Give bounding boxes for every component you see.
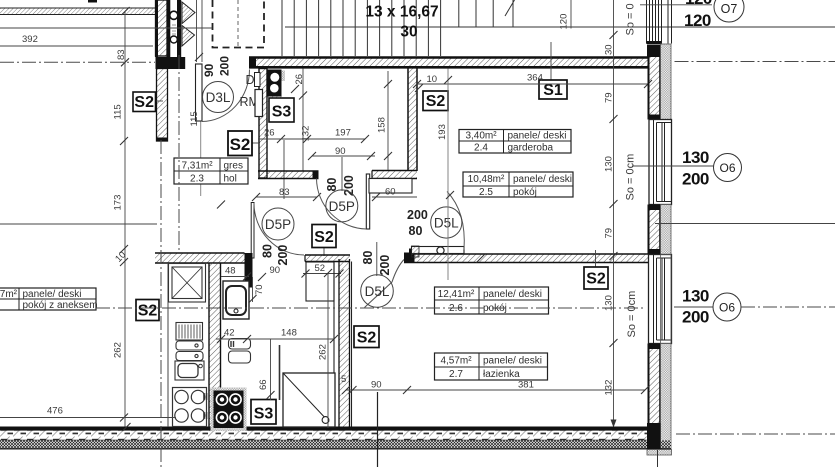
svg-text:łazienka: łazienka [483, 369, 520, 380]
svg-text:panele/ deski: panele/ deski [483, 289, 542, 300]
svg-text:70: 70 [254, 284, 265, 295]
svg-text:48: 48 [225, 266, 236, 277]
svg-text:O6: O6 [719, 301, 735, 315]
svg-text:115: 115 [189, 111, 200, 126]
svg-text:115: 115 [113, 104, 124, 119]
svg-text:S2: S2 [314, 229, 334, 246]
svg-text:173: 173 [113, 195, 124, 211]
svg-text:panele/ deski: panele/ deski [508, 131, 567, 142]
svg-text:262: 262 [113, 342, 124, 358]
svg-text:D5L: D5L [365, 284, 390, 299]
svg-text:30: 30 [604, 44, 615, 55]
svg-text:S2: S2 [134, 94, 154, 111]
svg-text:392: 392 [22, 34, 38, 45]
svg-text:2.3: 2.3 [190, 174, 204, 185]
svg-text:364: 364 [527, 73, 543, 84]
svg-text:S1: S1 [543, 82, 563, 99]
svg-text:200: 200 [682, 308, 709, 327]
svg-text:panele/ deski: panele/ deski [483, 356, 542, 367]
svg-text:2.4: 2.4 [474, 143, 488, 154]
svg-text:S2: S2 [138, 303, 158, 320]
svg-text:D5P: D5P [265, 217, 291, 232]
svg-text:13 x 16,67: 13 x 16,67 [365, 4, 438, 21]
svg-text:5: 5 [341, 374, 346, 385]
svg-text:90: 90 [335, 146, 346, 157]
svg-text:So = 0cm: So = 0cm [625, 154, 637, 201]
svg-text:gres: gres [224, 161, 243, 172]
svg-text:83: 83 [279, 187, 290, 198]
svg-text:So = 0: So = 0 [625, 3, 637, 35]
svg-text:200: 200 [682, 170, 709, 189]
svg-text:2.7: 2.7 [449, 369, 463, 380]
svg-text:30: 30 [400, 24, 417, 41]
svg-text:262: 262 [318, 344, 329, 360]
svg-text:79: 79 [604, 92, 615, 103]
svg-text:O6: O6 [719, 161, 735, 175]
svg-text:200: 200 [218, 56, 232, 76]
svg-text:10: 10 [427, 74, 438, 85]
svg-text:S2: S2 [586, 271, 606, 288]
svg-text:pokój z aneksem: pokój z aneksem [23, 300, 98, 311]
svg-text:4,57m²: 4,57m² [440, 356, 472, 367]
svg-text:D: D [246, 73, 255, 87]
svg-text:S2: S2 [230, 135, 251, 154]
svg-text:D3L: D3L [206, 90, 231, 105]
svg-text:42: 42 [224, 328, 235, 339]
svg-text:26: 26 [294, 74, 305, 85]
svg-text:158: 158 [377, 117, 388, 133]
svg-text:79: 79 [604, 228, 615, 239]
svg-text:130: 130 [682, 287, 709, 306]
svg-text:120: 120 [685, 0, 712, 8]
svg-text:S3: S3 [254, 406, 274, 423]
svg-text:130: 130 [604, 295, 615, 311]
svg-text:3,40m²: 3,40m² [465, 131, 497, 142]
svg-text:pokój: pokój [513, 187, 537, 198]
svg-text:200: 200 [407, 208, 428, 222]
svg-text:7,31m²: 7,31m² [181, 161, 213, 172]
svg-text:200: 200 [378, 255, 392, 276]
svg-text:200: 200 [276, 245, 290, 266]
svg-text:197: 197 [335, 128, 351, 139]
svg-text:200: 200 [342, 175, 356, 196]
svg-text:381: 381 [518, 380, 534, 391]
svg-text:7m²: 7m² [0, 289, 18, 300]
svg-text:193: 193 [437, 124, 448, 140]
svg-text:130: 130 [604, 156, 615, 172]
svg-text:90: 90 [270, 265, 281, 276]
svg-text:60: 60 [385, 187, 396, 198]
svg-text:S3: S3 [272, 104, 292, 121]
svg-text:90: 90 [202, 63, 216, 77]
svg-text:garderoba: garderoba [508, 143, 554, 154]
svg-text:80: 80 [409, 224, 423, 238]
svg-text:476: 476 [47, 406, 63, 417]
svg-text:2.5: 2.5 [479, 187, 493, 198]
svg-text:D5P: D5P [329, 199, 355, 214]
svg-text:D5L: D5L [434, 216, 459, 231]
svg-text:130: 130 [682, 148, 709, 167]
svg-text:So = 0cm: So = 0cm [626, 291, 638, 338]
svg-text:148: 148 [281, 328, 297, 339]
svg-text:66: 66 [258, 379, 269, 390]
svg-text:panele/ deski: panele/ deski [23, 289, 82, 300]
svg-text:120: 120 [559, 14, 570, 30]
svg-text:90: 90 [371, 380, 382, 391]
svg-text:S2: S2 [357, 330, 377, 347]
svg-text:80: 80 [361, 251, 375, 265]
svg-text:12,41m²: 12,41m² [438, 289, 475, 300]
svg-text:52: 52 [315, 263, 326, 274]
svg-text:10,48m²: 10,48m² [468, 174, 505, 185]
svg-text:80: 80 [325, 178, 339, 192]
svg-text:26: 26 [264, 128, 275, 139]
svg-text:S2: S2 [426, 93, 446, 110]
svg-text:132: 132 [604, 380, 615, 396]
svg-text:80: 80 [261, 244, 275, 258]
svg-text:hol: hol [224, 174, 237, 185]
svg-text:O7: O7 [721, 2, 738, 16]
svg-text:120: 120 [684, 11, 711, 30]
svg-text:panele/ deski: panele/ deski [513, 174, 572, 185]
